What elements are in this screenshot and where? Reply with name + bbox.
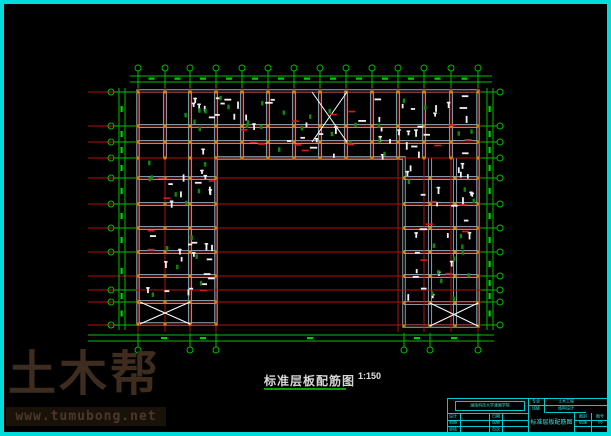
column-dot xyxy=(477,141,480,144)
field-value: 05 xyxy=(592,420,608,426)
rebar-mark xyxy=(415,252,420,254)
column-dot xyxy=(319,91,322,94)
axis-bubble xyxy=(369,65,375,71)
rebar-length-mark xyxy=(191,235,193,240)
column-dot xyxy=(164,275,167,278)
dim-text-mark xyxy=(451,337,457,339)
axis-bubble xyxy=(497,89,503,95)
column-dot xyxy=(164,227,167,230)
rebar-mark xyxy=(211,245,213,251)
rebar-cut-mark xyxy=(302,150,309,152)
column-dot xyxy=(241,157,244,160)
field-value: 土木工程 xyxy=(546,399,586,406)
column-dot xyxy=(137,125,140,128)
column-dot xyxy=(189,91,192,94)
title-block-divider xyxy=(502,413,503,433)
field-label: 图别 xyxy=(575,414,591,420)
axis-bubble xyxy=(421,65,427,71)
rebar-length-mark xyxy=(204,109,206,114)
rebar-length-mark xyxy=(204,162,206,167)
column-dot xyxy=(403,227,406,230)
axis-bubble xyxy=(497,155,503,161)
rebar-mark xyxy=(164,290,169,292)
field-label: 页次 xyxy=(490,427,502,433)
rebar-length-mark xyxy=(199,127,201,132)
rebar-mark xyxy=(245,115,247,121)
column-dot xyxy=(137,301,140,304)
rebar-mark xyxy=(183,174,185,181)
dim-text-mark xyxy=(489,311,491,317)
rebar-length-mark xyxy=(246,124,248,129)
rebar-mark xyxy=(150,235,156,237)
rebar-mark xyxy=(265,102,272,104)
column-dot xyxy=(241,141,244,144)
rebar-mark xyxy=(462,152,468,154)
axis-bubble xyxy=(475,347,481,353)
column-dot xyxy=(450,91,453,94)
rebar-mark xyxy=(237,102,239,109)
rebar-length-mark xyxy=(184,113,186,118)
rebar-mark xyxy=(300,137,305,139)
rebar-mark xyxy=(402,104,404,108)
rebar-mark xyxy=(418,152,420,158)
rebar-cut-mark xyxy=(430,201,437,203)
rebar-length-mark xyxy=(453,257,455,262)
column-dot xyxy=(189,203,192,206)
rebar-mark xyxy=(181,257,183,262)
rebar-length-mark xyxy=(433,243,435,248)
rebar-hook xyxy=(200,170,204,172)
rebar-cut-mark xyxy=(462,231,469,233)
column-dot xyxy=(215,301,218,304)
axis-bubble xyxy=(317,65,323,71)
rebar-cut-mark xyxy=(348,111,355,113)
dim-text-mark xyxy=(121,268,123,274)
rebar-mark xyxy=(466,116,468,123)
dim-text-mark xyxy=(121,147,123,153)
rebar-length-mark xyxy=(148,177,150,182)
dim-text-mark xyxy=(121,131,123,137)
rebar-hook xyxy=(414,232,418,234)
title-block-school-cell: 湖南科技大学潇湘学院 xyxy=(455,401,525,411)
column-dot xyxy=(267,141,270,144)
rebar-mark xyxy=(378,117,380,122)
column-dot xyxy=(477,177,480,180)
column-dot xyxy=(477,157,480,160)
rebar-length-mark xyxy=(453,297,455,302)
rebar-length-mark xyxy=(200,281,202,286)
rebar-hook xyxy=(450,261,454,263)
column-dot xyxy=(164,91,167,94)
rebar-cut-mark xyxy=(258,143,265,145)
rebar-hook xyxy=(205,243,209,245)
rebar-hook xyxy=(192,103,196,105)
axis-bubble xyxy=(401,347,407,353)
rebar-mark xyxy=(420,228,427,230)
rebar-hook xyxy=(334,126,338,128)
axis-bubble xyxy=(497,287,503,293)
dim-text-mark xyxy=(121,188,123,194)
column-dot xyxy=(319,141,322,144)
watermark-url: www.tumubong.net xyxy=(15,409,156,424)
rebar-hook xyxy=(193,98,197,100)
column-dot xyxy=(137,141,140,144)
rebar-hook xyxy=(414,129,418,131)
column-dot xyxy=(189,141,192,144)
rebar-hook xyxy=(203,175,207,177)
rebar-mark xyxy=(204,273,211,275)
dim-text-mark xyxy=(278,78,284,80)
column-dot xyxy=(423,91,426,94)
column-dot xyxy=(215,177,218,180)
rebar-mark xyxy=(464,220,469,222)
column-dot xyxy=(137,251,140,254)
dim-text-mark xyxy=(489,188,491,194)
rebar-length-mark xyxy=(473,199,475,204)
column-dot xyxy=(293,91,296,94)
column-dot xyxy=(477,125,480,128)
column-dot xyxy=(371,125,374,128)
column-dot xyxy=(403,177,406,180)
rebar-hook xyxy=(208,189,212,191)
column-dot xyxy=(137,203,140,206)
rebar-cut-mark xyxy=(420,259,427,261)
rebar-mark xyxy=(207,258,213,260)
title-block-divider xyxy=(460,413,461,433)
dim-text-mark xyxy=(489,237,491,243)
column-dot xyxy=(477,91,480,94)
column-dot xyxy=(429,275,432,278)
column-dot xyxy=(477,227,480,230)
rebar-hook xyxy=(437,187,441,189)
column-dot xyxy=(319,157,322,160)
column-dot xyxy=(137,91,140,94)
column-dot xyxy=(293,141,296,144)
column-dot xyxy=(397,141,400,144)
title-block-divider xyxy=(574,426,609,427)
column-dot xyxy=(397,157,400,160)
dim-text-mark xyxy=(121,311,123,317)
dim-text-mark xyxy=(161,337,167,339)
dim-text-mark xyxy=(304,78,310,80)
column-dot xyxy=(429,177,432,180)
dim-text-mark xyxy=(121,237,123,243)
rebar-hook xyxy=(192,252,196,254)
column-dot xyxy=(215,203,218,206)
rebar-mark xyxy=(310,147,317,149)
axis-bubble xyxy=(497,139,503,145)
rebar-length-mark xyxy=(378,138,380,143)
rebar-mark xyxy=(333,154,335,158)
column-dot xyxy=(454,227,457,230)
rebar-mark xyxy=(421,288,427,290)
column-dot xyxy=(345,157,348,160)
rebar-mark xyxy=(287,140,291,142)
rebar-mark xyxy=(208,277,215,279)
column-dot xyxy=(164,323,167,326)
field-value: 结施 xyxy=(575,420,591,426)
dim-text-mark xyxy=(435,78,441,80)
rebar-mark xyxy=(191,242,197,244)
rebar-mark xyxy=(389,139,391,143)
column-dot xyxy=(215,227,218,230)
rebar-length-mark xyxy=(467,273,469,278)
drawing-title-text: 标准层板配筋图 xyxy=(264,374,355,388)
rebar-mark xyxy=(407,294,409,301)
rebar-length-mark xyxy=(383,152,385,157)
dim-text-mark xyxy=(462,78,468,80)
column-dot xyxy=(454,302,457,305)
column-dot xyxy=(189,157,192,160)
drawing-caption: 标准层板配筋图1:150 xyxy=(264,372,378,389)
rebar-cut-mark xyxy=(209,180,216,182)
rebar-mark xyxy=(358,120,366,122)
column-dot xyxy=(164,125,167,128)
column-dot xyxy=(403,325,406,328)
rebar-length-mark xyxy=(309,114,311,119)
field-label: 图号 xyxy=(592,414,608,420)
dim-text-mark xyxy=(149,78,155,80)
rebar-cut-mark xyxy=(294,144,301,146)
rebar-length-mark xyxy=(227,105,229,110)
rebar-length-mark xyxy=(283,110,285,115)
dim-text-mark xyxy=(489,213,491,219)
column-dot xyxy=(403,251,406,254)
column-dot xyxy=(137,157,140,160)
dim-text-mark xyxy=(489,165,491,171)
dim-text-mark xyxy=(489,293,491,299)
rebar-length-mark xyxy=(151,175,153,180)
rebar-hook xyxy=(178,249,182,251)
rebar-hook xyxy=(170,200,174,202)
rebar-mark xyxy=(195,182,202,184)
rebar-length-mark xyxy=(278,147,280,152)
rebar-mark xyxy=(188,289,190,295)
dim-text-mark xyxy=(489,261,491,267)
column-dot xyxy=(454,177,457,180)
rebar-cut-mark xyxy=(148,249,155,251)
dim-text-mark xyxy=(200,337,206,339)
dim-text-mark xyxy=(356,78,362,80)
axis-bubble xyxy=(497,225,503,231)
dim-text-mark xyxy=(121,165,123,171)
rebar-hook xyxy=(433,112,437,114)
column-dot xyxy=(397,125,400,128)
rebar-cut-mark xyxy=(200,290,207,292)
rebar-length-mark xyxy=(260,125,262,130)
dim-text-mark xyxy=(121,293,123,299)
field-label: 制图 xyxy=(447,420,460,426)
rebar-mark xyxy=(209,116,215,118)
rebar-hook xyxy=(407,130,411,132)
rebar-cut-mark xyxy=(434,145,441,147)
rebar-length-mark xyxy=(424,105,426,110)
dim-text-mark xyxy=(200,78,206,80)
axis-bubble xyxy=(497,322,503,328)
watermark-brand: 土木帮 xyxy=(8,350,161,398)
cad-canvas: { "caption": { "text": "标准层板配筋图", "scale… xyxy=(0,0,611,436)
rebar-length-mark xyxy=(152,292,154,297)
rebar-length-mark xyxy=(185,201,187,206)
rebar-cut-mark xyxy=(445,273,452,275)
dim-text-mark xyxy=(307,337,313,339)
rebar-mark xyxy=(462,95,469,97)
axis-bubble xyxy=(187,65,193,71)
rebar-mark xyxy=(233,114,235,120)
rebar-length-mark xyxy=(464,187,466,192)
column-dot xyxy=(403,203,406,206)
rebar-length-mark xyxy=(462,250,464,255)
column-dot xyxy=(267,91,270,94)
column-dot xyxy=(137,275,140,278)
column-dot xyxy=(215,157,218,160)
rebar-mark xyxy=(423,134,430,136)
rebar-mark xyxy=(375,98,382,100)
column-dot xyxy=(403,302,406,305)
rebar-hook xyxy=(397,129,401,131)
dim-text-mark xyxy=(489,147,491,153)
rebar-hook xyxy=(447,102,451,104)
rebar-mark xyxy=(460,172,462,178)
column-dot xyxy=(454,251,457,254)
rebar-length-mark xyxy=(408,180,410,185)
rebar-mark xyxy=(180,191,182,197)
rebar-cut-mark xyxy=(465,139,472,141)
rebar-mark xyxy=(411,146,417,148)
column-dot xyxy=(189,227,192,230)
column-dot xyxy=(371,157,374,160)
rebar-cut-mark xyxy=(459,204,466,206)
rebar-hook xyxy=(197,104,201,106)
rebar-cut-mark xyxy=(148,230,155,232)
rebar-mark xyxy=(215,114,220,116)
axis-bubble xyxy=(213,65,219,71)
column-dot xyxy=(477,251,480,254)
axis-bubble xyxy=(395,65,401,71)
column-dot xyxy=(397,91,400,94)
rebar-cut-mark xyxy=(158,177,165,179)
rebar-cut-mark xyxy=(449,124,456,126)
column-dot xyxy=(164,157,167,160)
column-dot xyxy=(454,325,457,328)
rebar-length-mark xyxy=(378,123,380,128)
axis-bubble xyxy=(187,347,193,353)
rebar-length-mark xyxy=(148,161,150,166)
column-dot xyxy=(429,227,432,230)
axis-bubble xyxy=(475,65,481,71)
rebar-mark xyxy=(435,105,437,112)
axis-bubble xyxy=(448,65,454,71)
axis-bubble xyxy=(497,175,503,181)
column-dot xyxy=(164,203,167,206)
rebar-mark xyxy=(306,122,308,127)
rebar-mark xyxy=(319,133,323,135)
axis-bubble xyxy=(343,65,349,71)
column-dot xyxy=(215,275,218,278)
column-dot xyxy=(319,125,322,128)
rebar-mark xyxy=(416,269,418,273)
column-dot xyxy=(371,141,374,144)
rebar-length-mark xyxy=(458,131,460,136)
column-dot xyxy=(189,275,192,278)
rebar-length-mark xyxy=(331,132,333,137)
field-value: 结构设计 xyxy=(546,406,586,413)
field-label: 成绩 xyxy=(490,420,502,426)
dim-text-mark xyxy=(330,78,336,80)
rebar-length-mark xyxy=(175,192,177,197)
axis-bubble xyxy=(497,201,503,207)
rebar-mark xyxy=(417,126,423,128)
rebar-length-mark xyxy=(195,254,197,258)
rebar-hook xyxy=(315,138,319,140)
column-dot xyxy=(137,177,140,180)
field-label: 设计 xyxy=(447,414,460,420)
rebar-hook xyxy=(406,171,410,173)
column-dot xyxy=(137,323,140,326)
column-dot xyxy=(241,125,244,128)
column-dot xyxy=(241,91,244,94)
dim-text-mark xyxy=(382,78,388,80)
rebar-length-mark xyxy=(461,245,463,250)
rebar-cut-mark xyxy=(241,129,248,131)
rebar-mark xyxy=(447,233,449,238)
dim-text-mark xyxy=(252,78,258,80)
rebar-hook xyxy=(164,261,168,263)
rebar-mark xyxy=(168,183,173,185)
rebar-cut-mark xyxy=(426,223,433,225)
rebar-cut-mark xyxy=(250,142,257,144)
column-dot xyxy=(345,125,348,128)
rebar-mark xyxy=(467,174,469,179)
column-dot xyxy=(371,91,374,94)
rebar-mark xyxy=(188,244,192,246)
rebar-length-mark xyxy=(198,108,200,113)
rebar-length-mark xyxy=(470,129,472,134)
axis-bubble xyxy=(265,65,271,71)
dim-text-mark xyxy=(489,131,491,137)
rebar-cut-mark xyxy=(347,144,354,146)
column-dot xyxy=(450,157,453,160)
title-block-drawing-name: 标准层板配筋图 xyxy=(529,413,574,433)
rebar-length-mark xyxy=(460,234,462,239)
column-dot xyxy=(215,323,218,326)
rebar-length-mark xyxy=(193,120,195,125)
axis-bubble xyxy=(162,65,168,71)
axis-bubble xyxy=(213,347,219,353)
rebar-mark xyxy=(381,127,383,131)
column-dot xyxy=(215,141,218,144)
rebar-hook xyxy=(378,136,382,138)
dim-text-mark xyxy=(414,337,420,339)
rebar-mark xyxy=(410,165,412,171)
rebar-mark xyxy=(189,288,193,290)
dim-text-mark xyxy=(121,213,123,219)
rebar-cut-mark xyxy=(292,120,299,122)
column-dot xyxy=(450,141,453,144)
column-dot xyxy=(164,251,167,254)
drawing-scale-text: 1:150 xyxy=(358,371,381,381)
rebar-mark xyxy=(406,142,408,150)
column-dot xyxy=(477,275,480,278)
rebar-length-mark xyxy=(354,123,356,128)
column-dot xyxy=(189,177,192,180)
column-dot xyxy=(189,125,192,128)
rebar-mark xyxy=(224,99,231,101)
rebar-length-mark xyxy=(437,270,439,275)
field-label: 日期 xyxy=(490,414,502,420)
column-dot xyxy=(189,251,192,254)
rebar-mark xyxy=(462,197,464,204)
